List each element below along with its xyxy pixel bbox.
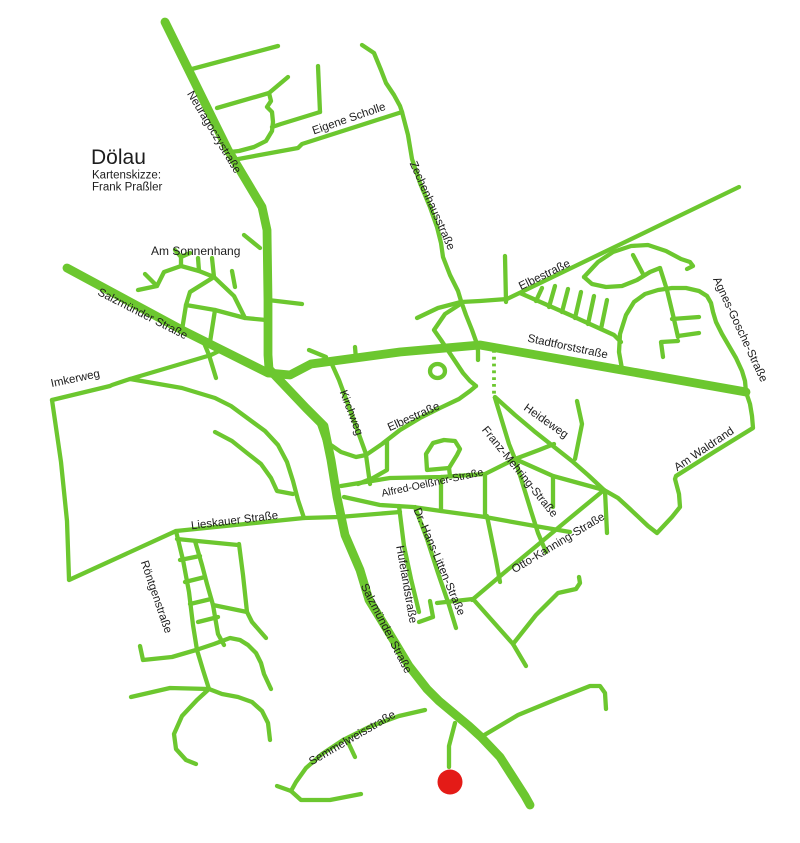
- svg-text:Frank Praßler: Frank Praßler: [92, 182, 162, 194]
- svg-text:Am Waldrand: Am Waldrand: [672, 425, 736, 474]
- svg-text:Am Sonnenhang: Am Sonnenhang: [151, 244, 240, 258]
- svg-text:Salzmünder Straße: Salzmünder Straße: [95, 286, 189, 342]
- svg-text:Kirchweg: Kirchweg: [337, 389, 365, 437]
- svg-text:Röntgenstraße: Röntgenstraße: [138, 559, 174, 635]
- svg-text:Elbestraße: Elbestraße: [386, 400, 442, 434]
- svg-text:Elbestraße: Elbestraße: [517, 258, 572, 293]
- svg-text:Hufelandstraße: Hufelandstraße: [393, 545, 418, 625]
- svg-text:Semmelweisstraße: Semmelweisstraße: [307, 709, 398, 768]
- svg-text:Dölau: Dölau: [91, 146, 146, 169]
- svg-text:Imkerweg: Imkerweg: [50, 368, 101, 390]
- svg-text:Otto-Kanning-Straße: Otto-Kanning-Straße: [510, 511, 607, 576]
- svg-text:Heideweg: Heideweg: [521, 402, 570, 441]
- svg-text:Lieskauer Straße: Lieskauer Straße: [190, 510, 278, 533]
- svg-text:Zechenhausstraße: Zechenhausstraße: [407, 160, 457, 252]
- svg-text:Kartenskizze:: Kartenskizze:: [92, 170, 161, 182]
